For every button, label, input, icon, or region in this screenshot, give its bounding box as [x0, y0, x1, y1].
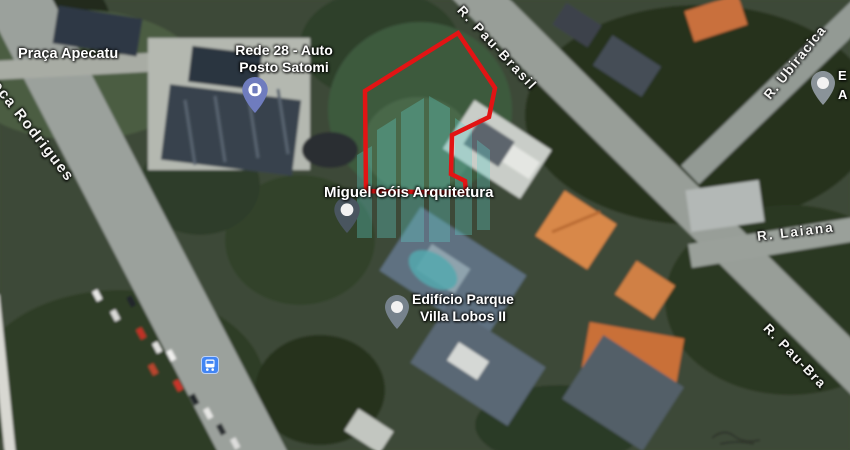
poi-label-posto-line2: Posto Satomi: [223, 59, 345, 76]
terrain-layer: [0, 0, 850, 450]
edge-cutoff-line2: A: [838, 85, 847, 104]
park-label-praca-apecatu: Praça Apecatu: [18, 46, 118, 63]
poi-label-edificio-villa-lobos[interactable]: Edifício Parque Villa Lobos II: [400, 291, 526, 325]
poi-label-miguel-gois[interactable]: Miguel Góis Arquitetura: [324, 184, 493, 201]
gas-station-pin-icon[interactable]: [242, 77, 268, 113]
architecture-office-pin-icon[interactable]: [334, 197, 360, 233]
poi-label-edificio-line1: Edifício Parque: [400, 291, 526, 308]
map-canvas[interactable]: [0, 0, 850, 450]
edge-poi-pin-icon[interactable]: [811, 71, 835, 105]
edge-cutoff-line1: E: [838, 66, 847, 85]
edge-cutoff-label: E A: [838, 66, 847, 104]
poi-label-posto-satomi[interactable]: Rede 28 - Auto Posto Satomi: [223, 42, 345, 76]
poi-label-posto-line1: Rede 28 - Auto: [223, 42, 345, 59]
poi-label-edificio-line2: Villa Lobos II: [400, 308, 526, 325]
transit-station-icon[interactable]: [201, 356, 219, 374]
satellite-map-view[interactable]: Praça Apecatu Rede 28 - Auto Posto Satom…: [0, 0, 850, 450]
